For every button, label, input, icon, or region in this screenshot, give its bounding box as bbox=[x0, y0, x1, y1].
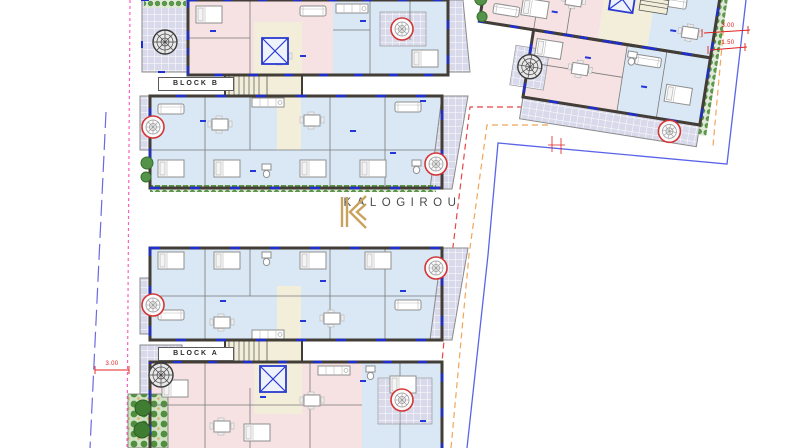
building-block-b bbox=[140, 0, 470, 192]
plant-icon bbox=[141, 157, 153, 169]
dimension-right-inner: 1.50 bbox=[708, 40, 748, 46]
plan-canvas: BLOCK B BLOCK A 3.00 1.50 3.00 KALOGIROU bbox=[0, 0, 796, 448]
left-pink-boundary-line bbox=[127, 0, 130, 448]
jacuzzi-icon bbox=[142, 294, 164, 316]
plant-icon bbox=[134, 422, 150, 438]
plant-icon bbox=[135, 400, 151, 416]
dimension-left: 3.00 bbox=[95, 361, 129, 367]
jacuzzi-icon bbox=[425, 153, 447, 175]
jacuzzi-icon bbox=[142, 116, 164, 138]
plant-icon bbox=[141, 172, 151, 182]
stairs-icon bbox=[229, 76, 267, 95]
brand-logo: KALOGIROU bbox=[330, 194, 470, 209]
spiral-stair-icon bbox=[149, 363, 173, 387]
jacuzzi-icon bbox=[391, 389, 413, 411]
elevator-icon bbox=[262, 38, 288, 64]
stairs-icon bbox=[229, 341, 267, 361]
building-top-right bbox=[457, 0, 728, 148]
jacuzzi-icon bbox=[391, 18, 413, 40]
jacuzzi-icon bbox=[425, 257, 447, 279]
block-a-label: BLOCK A bbox=[158, 347, 234, 361]
balcony bbox=[448, 0, 470, 72]
site-plan-drawing bbox=[0, 0, 796, 448]
dimension-right-outer: 3.00 bbox=[706, 23, 750, 29]
hedge-icon bbox=[144, 0, 186, 8]
elevator-icon bbox=[260, 366, 286, 392]
spiral-stair-icon bbox=[153, 30, 177, 54]
left-blue-boundary-line bbox=[90, 112, 106, 448]
orange-setback-line bbox=[451, 125, 548, 448]
block-b-label: BLOCK B bbox=[158, 77, 234, 91]
logo-k-monogram-icon bbox=[330, 194, 372, 230]
